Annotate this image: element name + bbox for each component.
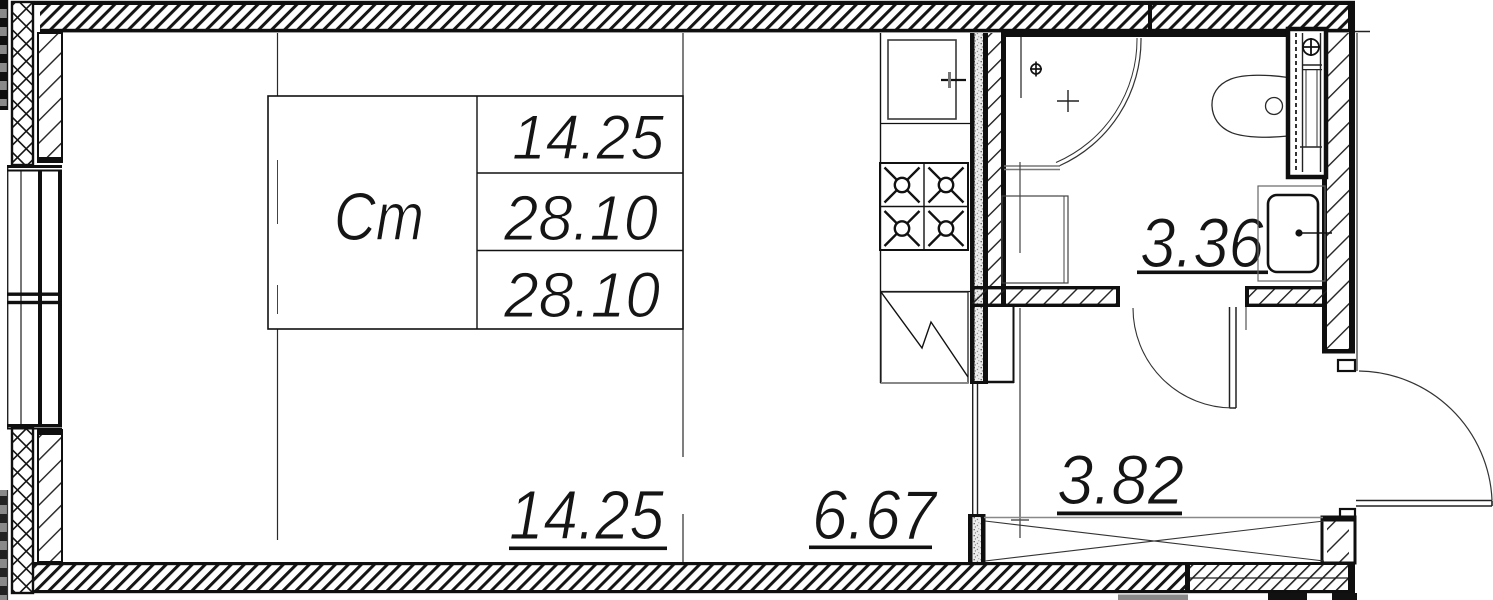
svg-text:3.36: 3.36: [1140, 204, 1264, 282]
svg-text:14.25: 14.25: [509, 476, 665, 554]
svg-text:Cт: Cт: [334, 179, 424, 255]
svg-text:28.10: 28.10: [503, 259, 660, 331]
svg-text:6.67: 6.67: [812, 476, 939, 554]
svg-text:14.25: 14.25: [512, 103, 665, 173]
svg-text:3.82: 3.82: [1057, 441, 1184, 519]
svg-text:28.10: 28.10: [503, 182, 658, 254]
